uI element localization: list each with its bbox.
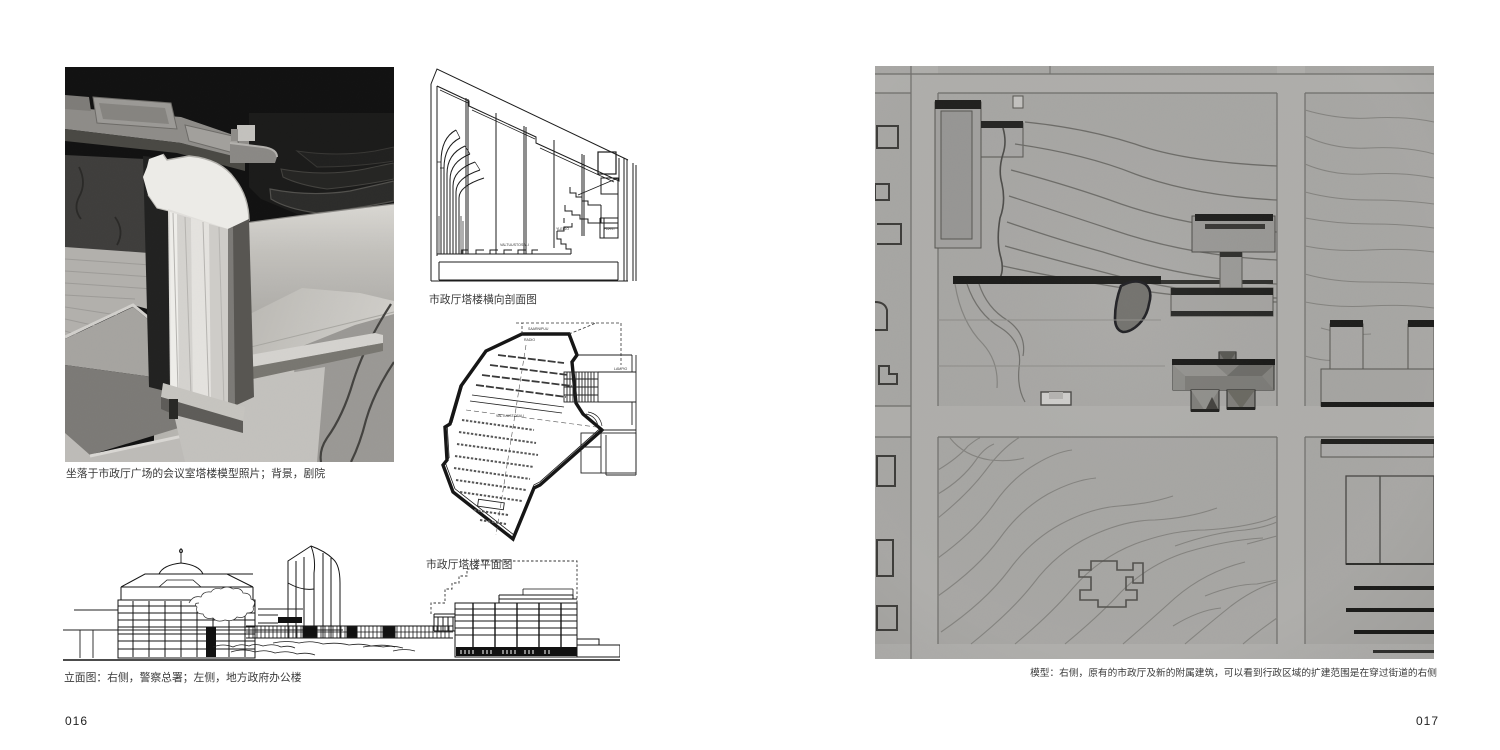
svg-text:LAMPIO: LAMPIO [614, 367, 628, 371]
svg-text:YLEISO: YLEISO [556, 227, 569, 231]
svg-text:SAARNIPUU: SAARNIPUU [528, 327, 549, 331]
svg-text:PARVI: PARVI [604, 227, 614, 231]
svg-text:VALTUUSTOSALI: VALTUUSTOSALI [496, 414, 524, 418]
svg-text:VALTUUSTOSALI: VALTUUSTOSALI [500, 243, 529, 247]
svg-text:RADIO: RADIO [524, 338, 535, 342]
